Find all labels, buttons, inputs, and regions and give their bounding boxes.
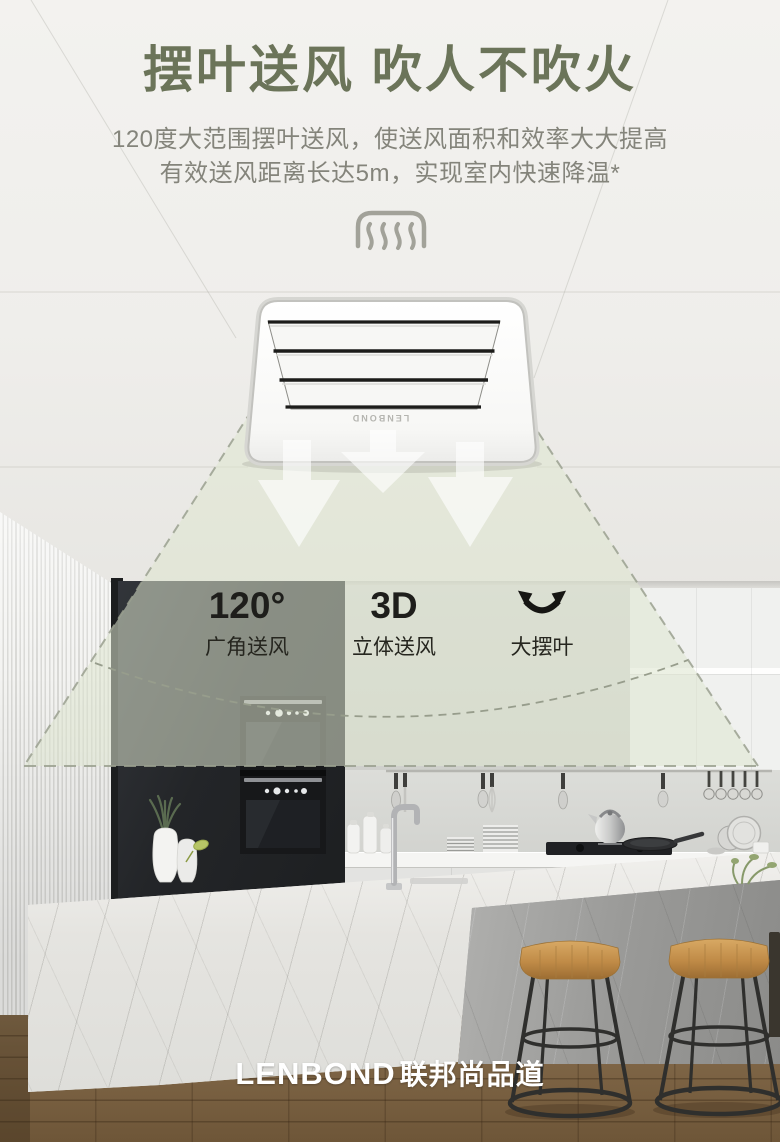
fan-brand-label: LENBOND xyxy=(340,413,420,423)
feature-big-swing: 大摆叶 xyxy=(482,584,602,661)
utensil-rail xyxy=(386,771,772,812)
feature-label-big-swing: 大摆叶 xyxy=(482,631,602,661)
airflow-vent-icon xyxy=(358,213,424,248)
ladle-hooks xyxy=(704,771,762,799)
swing-arrows-icon xyxy=(482,584,602,628)
brand-logo-cn: 联邦尚品道 xyxy=(400,1053,545,1093)
vases-and-plant xyxy=(150,796,210,882)
feature-label-wide-angle: 广角送风 xyxy=(187,631,307,661)
feature-label-3d: 立体送风 xyxy=(334,631,454,661)
dish-rack xyxy=(707,817,769,855)
feature-value-120deg: 120° xyxy=(187,584,307,628)
louver-opening xyxy=(268,321,500,409)
feature-3d: 3D 立体送风 xyxy=(334,584,454,661)
feature-value-3d: 3D xyxy=(334,584,454,628)
subtitle-line-1: 120度大范围摆叶送风，使送风面积和效率大大提高 xyxy=(0,119,780,154)
plant-right xyxy=(731,854,777,884)
product-poster: 摆叶送风 吹人不吹火 120度大范围摆叶送风，使送风面积和效率大大提高 有效送风… xyxy=(0,0,780,1142)
canisters xyxy=(347,812,392,853)
kettle xyxy=(588,811,625,845)
plate-stacks xyxy=(447,825,518,852)
feature-wide-angle: 120° 广角送风 xyxy=(187,584,307,661)
brand-logo: LENBOND 联邦尚品道 xyxy=(0,1053,780,1093)
subtitle-line-2: 有效送风距离长达5m，实现室内快速降温* xyxy=(0,153,780,188)
cooktop xyxy=(546,811,702,856)
bar-stool-left xyxy=(505,941,635,1120)
headline: 摆叶送风 吹人不吹火 xyxy=(0,30,780,102)
brand-logo-en: LENBOND xyxy=(235,1056,395,1092)
